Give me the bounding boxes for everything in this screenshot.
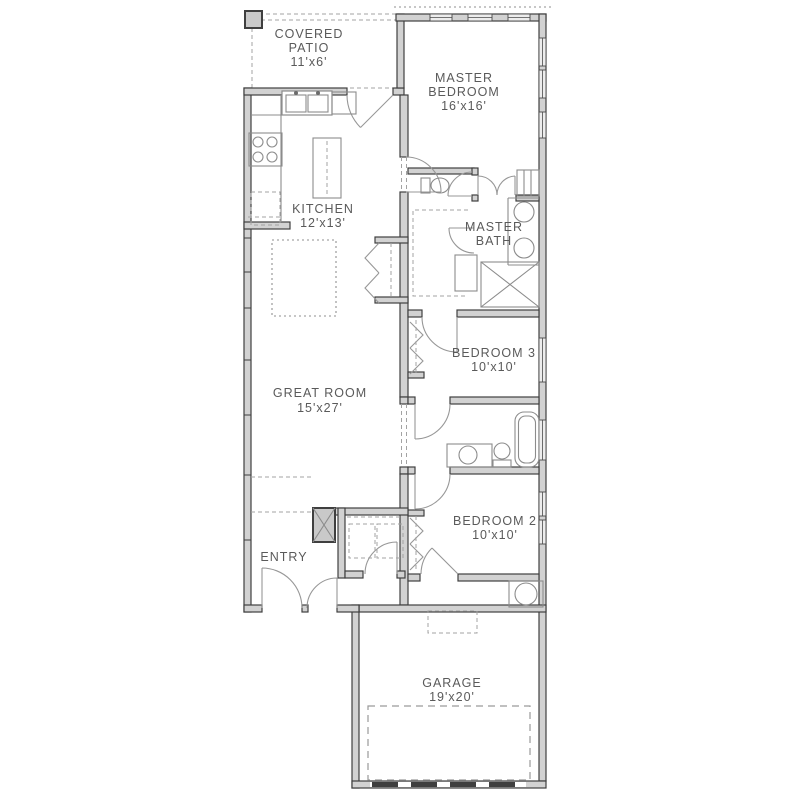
wall-layer — [244, 14, 546, 788]
closet-bench-icon — [455, 255, 477, 291]
shower-icon — [481, 262, 539, 307]
garage-door-opening — [370, 782, 526, 787]
room-dims-covered-patio: 11'x6' — [291, 55, 328, 69]
window — [539, 70, 546, 98]
window — [468, 14, 492, 21]
garage-storage-outline — [428, 611, 477, 633]
room-label-master-bath: MASTER — [465, 220, 523, 234]
room-label-kitchen: KITCHEN — [292, 202, 354, 216]
refrigerator-space-icon — [251, 192, 280, 225]
kitchen-range-icon — [249, 133, 282, 166]
master-toilet-icon — [421, 178, 449, 193]
toilet-room-door-arc — [448, 172, 472, 196]
floor-plan-page: COVERED PATIO 11'x6' MASTER BEDROOM 16'x… — [0, 0, 800, 800]
master-double-door-arc — [478, 176, 515, 195]
window — [539, 38, 546, 66]
window — [539, 520, 546, 544]
room-label-bedroom-2: BEDROOM 2 — [453, 514, 537, 528]
garage-door-clearance-outline — [368, 706, 530, 780]
window — [539, 492, 546, 516]
room-label-garage: GARAGE — [422, 676, 482, 690]
patio-column-icon — [245, 11, 262, 28]
window — [508, 14, 530, 21]
room-label-master-bedroom: BEDROOM — [428, 85, 500, 99]
kitchen-island-icon — [313, 138, 341, 198]
room-dims-bedroom-3: 10'x10' — [471, 360, 517, 374]
room-dims-kitchen: 12'x13' — [300, 216, 346, 230]
room-dims-great-room: 15'x27' — [297, 401, 343, 415]
bath2-vanity-icon — [447, 444, 492, 467]
water-heater-icon — [509, 581, 543, 607]
entry-chase-icon — [313, 508, 335, 542]
garage-entry-door-arc — [421, 548, 458, 574]
kitchen-sink-icon — [282, 91, 332, 115]
room-label-entry: ENTRY — [260, 550, 307, 564]
linen-closet-icon — [517, 170, 539, 196]
room-dims-garage: 19'x20' — [429, 690, 475, 704]
window — [539, 338, 546, 382]
room-label-bedroom-3: BEDROOM 3 — [452, 346, 536, 360]
bathtub-icon — [515, 412, 539, 467]
patio-door-arc — [347, 95, 393, 128]
bath2-door-arc — [415, 404, 450, 439]
pantry-bifold-icon — [365, 243, 379, 303]
window — [539, 420, 546, 460]
room-label-master-bath: BATH — [476, 234, 512, 248]
bedroom2-door-arc — [415, 474, 450, 509]
window — [539, 112, 546, 138]
room-label-great-room: GREAT ROOM — [273, 386, 367, 400]
dryer-space-icon — [377, 524, 403, 558]
washer-space-icon — [349, 524, 375, 558]
room-label-master-bedroom: MASTER — [435, 71, 493, 85]
entry-closet-door-arc — [307, 578, 337, 608]
floor-plan-drawing: COVERED PATIO 11'x6' MASTER BEDROOM 16'x… — [0, 0, 800, 800]
window — [430, 14, 452, 21]
room-dims-master-bedroom: 16'x16' — [441, 99, 487, 113]
front-door-arc — [262, 568, 302, 608]
bath2-toilet-icon — [493, 443, 511, 467]
room-label-covered-patio: PATIO — [289, 41, 330, 55]
room-dims-bedroom-2: 10'x10' — [472, 528, 518, 542]
room-label-covered-patio: COVERED — [275, 27, 344, 41]
kitchen-counter-line — [251, 95, 282, 222]
